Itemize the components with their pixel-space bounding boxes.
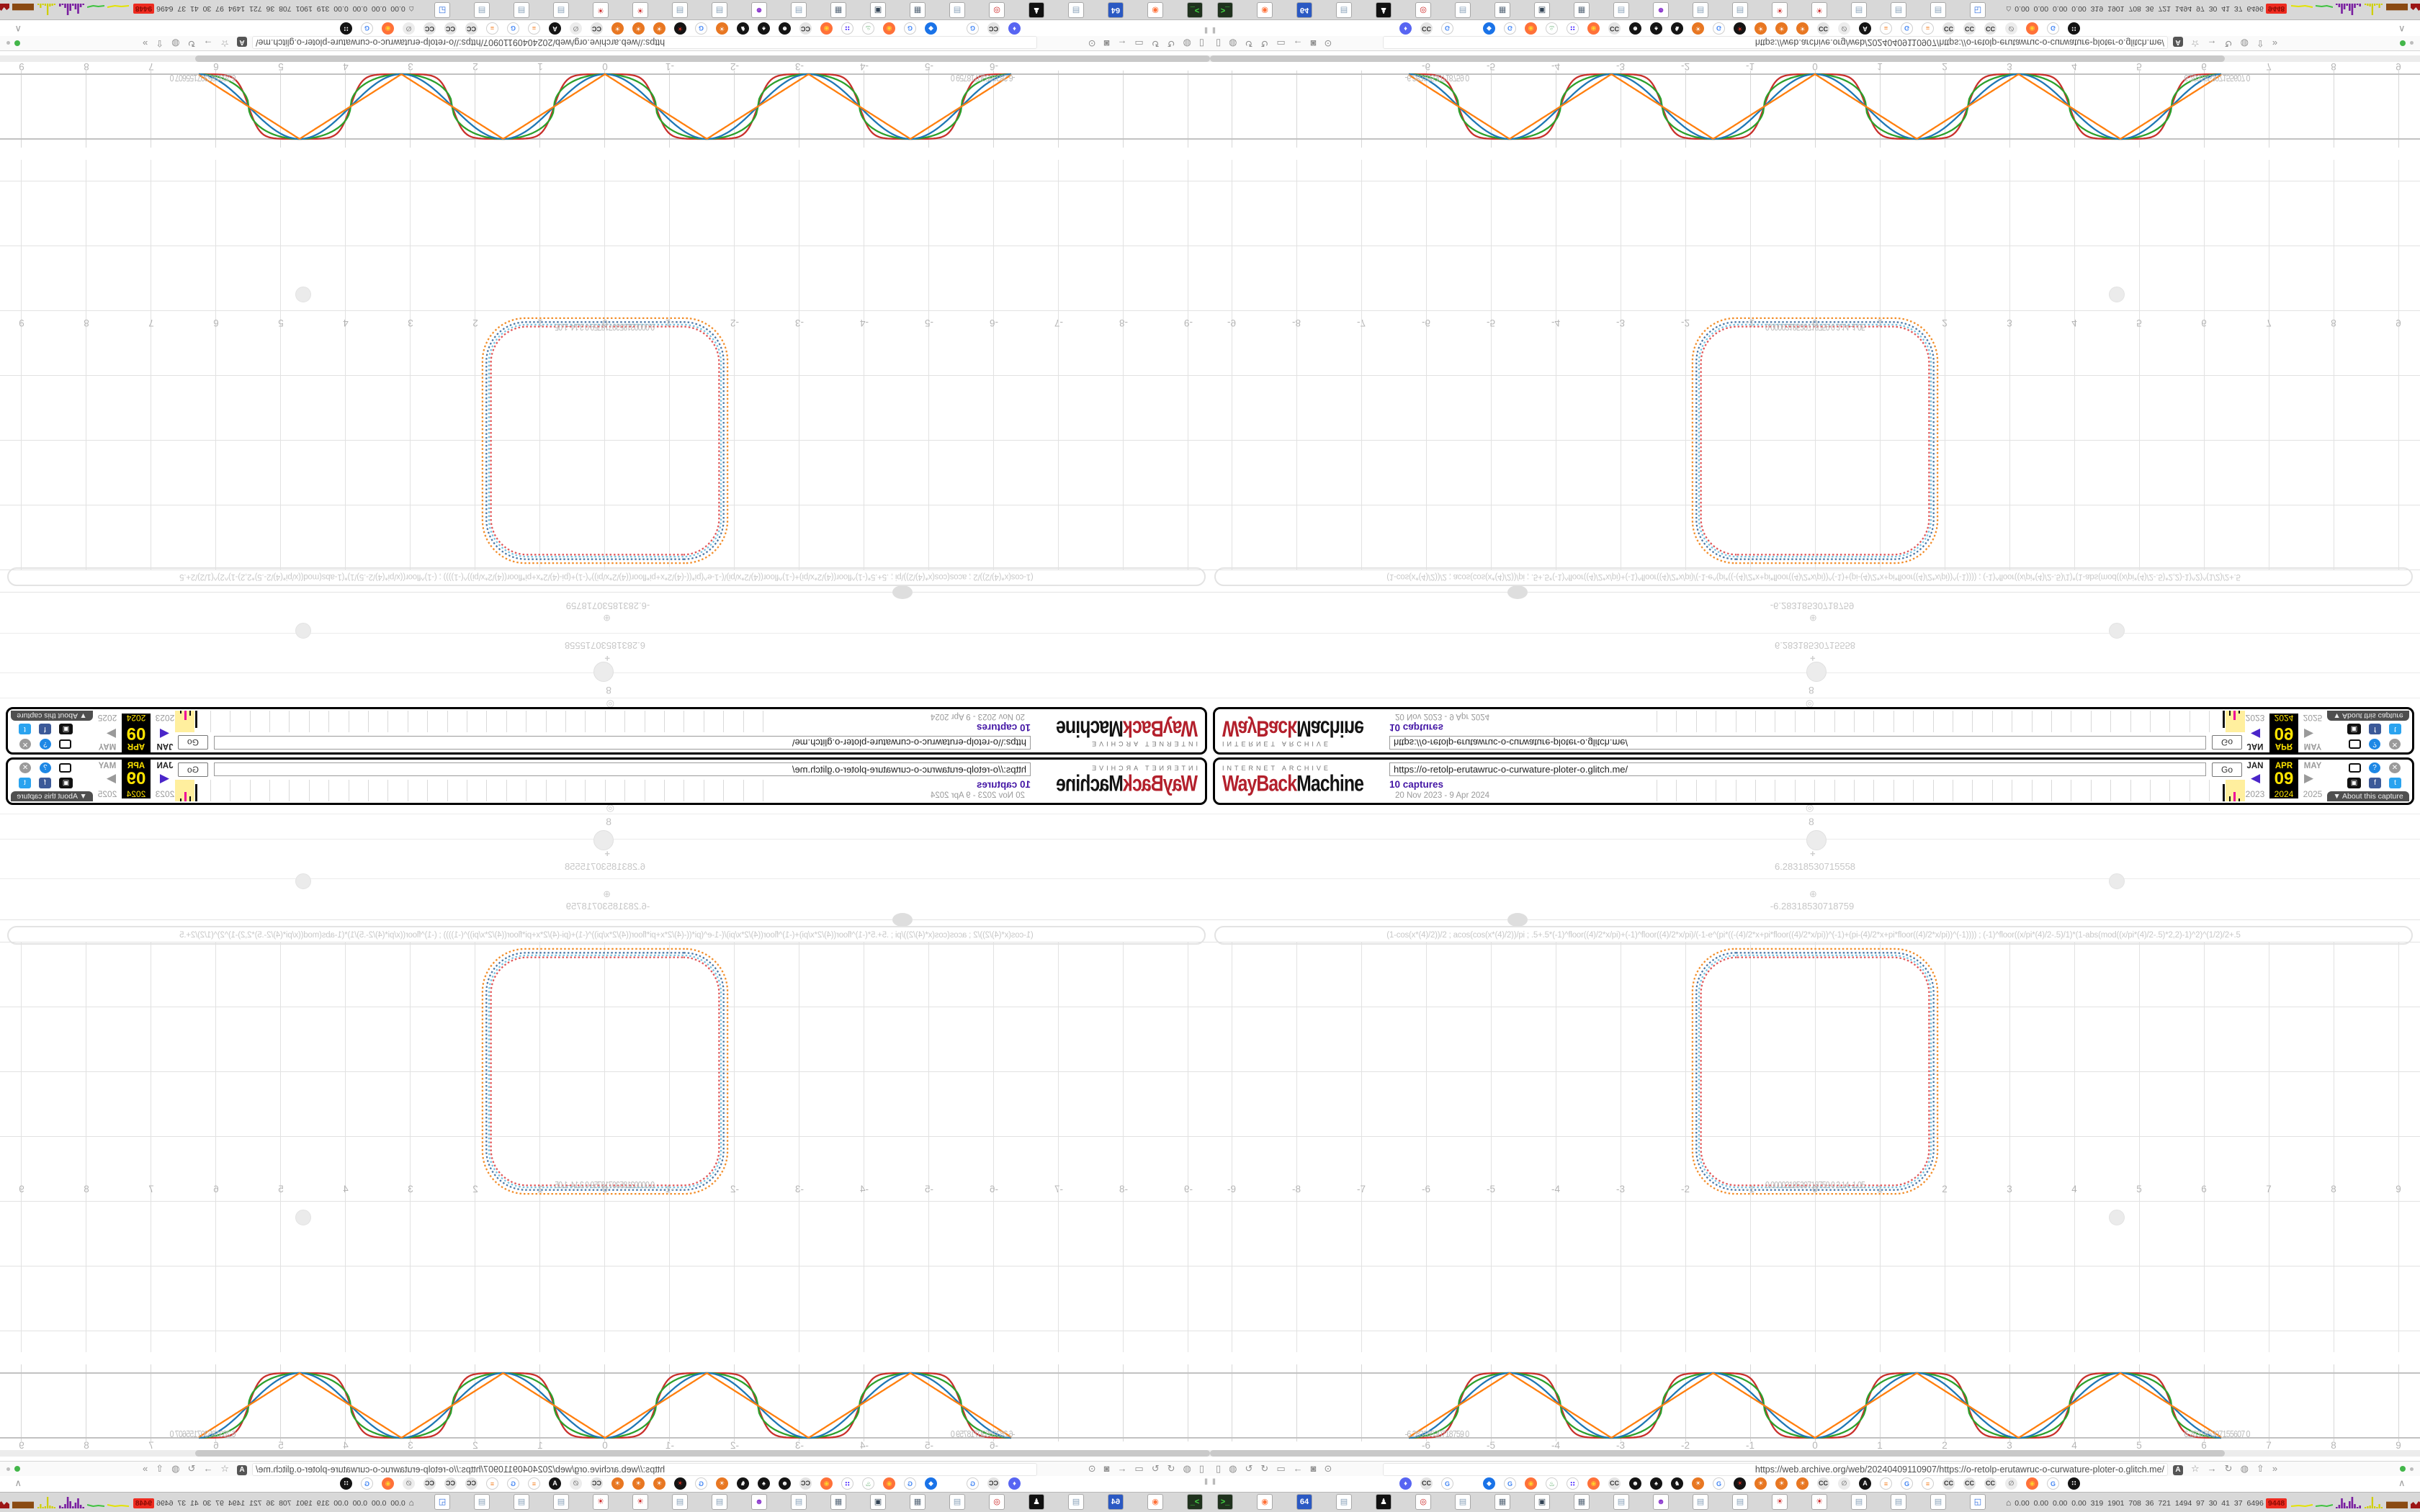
back-icon[interactable]: ← — [1294, 38, 1303, 49]
calculator-app[interactable]: ▦ — [830, 2, 846, 18]
maximize-icon[interactable] — [59, 739, 71, 749]
stackoverflow-favicon[interactable]: ≡ — [486, 22, 498, 35]
prev-capture-arrow[interactable]: ◀ — [160, 726, 169, 741]
gear-app[interactable]: ☀ — [1772, 1494, 1788, 1510]
forward-icon[interactable]: → — [2208, 38, 2217, 49]
bird-favicon[interactable]: ♞ — [737, 22, 749, 35]
next-year-label[interactable]: 2025 — [2297, 713, 2329, 723]
document-app[interactable]: ▤ — [1930, 2, 1946, 18]
gear-dark-favicon[interactable]: ☀ — [1734, 22, 1746, 35]
creative-commons-favicon[interactable]: CC — [1984, 22, 1996, 35]
captures-timeline[interactable] — [1657, 780, 2247, 801]
gear-favicon[interactable]: ☀ — [1775, 1477, 1788, 1490]
lock-icon[interactable]: ⊙ — [1324, 38, 1332, 49]
google-favicon[interactable]: G — [2047, 1477, 2059, 1490]
document-app[interactable]: ▤ — [1693, 2, 1708, 18]
prev-capture-arrow[interactable]: ◀ — [160, 771, 169, 786]
firefox-favicon[interactable]: ◉ — [2026, 22, 2038, 35]
google-favicon[interactable]: G — [695, 1477, 707, 1490]
overflow-menu-icon[interactable]: » — [143, 38, 148, 49]
trash-icon[interactable]: ▯ — [1199, 38, 1204, 49]
glitch-favicon[interactable]: ∷ — [841, 1477, 853, 1490]
document-app[interactable]: ▤ — [1851, 2, 1867, 18]
gear-app[interactable]: ☀ — [593, 2, 609, 18]
gear-favicon[interactable]: ☀ — [1754, 22, 1767, 35]
undo-icon[interactable]: ↺ — [1245, 38, 1253, 49]
wayback-logo[interactable]: INTERNET ARCHIVE WayBackMachine — [1044, 721, 1198, 747]
cat-app[interactable]: ♟ — [1376, 2, 1391, 18]
lock-icon[interactable]: ⊙ — [1088, 1463, 1096, 1474]
prev-year-label[interactable]: 2023 — [2239, 713, 2271, 723]
creative-commons-favicon[interactable]: CC — [1984, 1477, 1996, 1490]
gear-app[interactable]: ☀ — [1772, 2, 1788, 18]
google-favicon[interactable]: G — [507, 1477, 519, 1490]
google-favicon[interactable]: G — [967, 22, 979, 35]
captures-timeline[interactable] — [173, 711, 763, 732]
close-banner-icon[interactable]: ✕ — [2389, 739, 2401, 750]
screenshot-camera-icon[interactable]: ▣ — [59, 724, 73, 734]
range-knob[interactable] — [1806, 662, 1827, 682]
translate-icon[interactable]: A — [2173, 37, 2183, 47]
firefox-app[interactable]: ◉ — [1147, 1494, 1163, 1510]
prev-year-label[interactable]: 2023 — [149, 789, 181, 799]
gear-favicon[interactable]: ☀ — [632, 22, 645, 35]
next-capture-arrow[interactable]: ▶ — [2304, 771, 2313, 786]
document-app[interactable]: ▤ — [1851, 1494, 1867, 1510]
google-favicon[interactable]: G — [361, 22, 373, 35]
redo-icon[interactable]: ↻ — [1260, 38, 1268, 49]
google-favicon[interactable]: G — [904, 22, 916, 35]
globe-icon[interactable]: ◍ — [2241, 38, 2249, 49]
discord-favicon[interactable]: ♦ — [1399, 22, 1412, 35]
smiley-favicon[interactable]: ☻ — [779, 1477, 791, 1490]
calculator-app[interactable]: ▦ — [1574, 2, 1590, 18]
stackoverflow-favicon[interactable]: ≡ — [528, 22, 540, 35]
folder-icon[interactable]: ▭ — [1276, 1463, 1285, 1474]
shield-icon[interactable]: ◙ — [1104, 38, 1110, 49]
folder-icon[interactable]: ▭ — [1276, 38, 1285, 49]
prev-month-label[interactable]: JAN — [151, 762, 179, 770]
glitch-favicon[interactable]: ∷ — [1567, 22, 1579, 35]
address-bar[interactable]: https://web.archive.org/web/202404091109… — [1383, 36, 2168, 49]
grid-favicon[interactable]: ∷ — [2068, 1477, 2080, 1490]
prev-month-label[interactable]: JAN — [2241, 742, 2269, 750]
captures-timeline[interactable] — [1657, 711, 2247, 732]
next-month-label[interactable]: MAY — [2298, 762, 2327, 770]
google-favicon[interactable]: G — [507, 22, 519, 35]
creative-commons-favicon[interactable]: CC — [423, 1477, 436, 1490]
calculator-app[interactable]: ▦ — [1494, 2, 1510, 18]
bird-favicon[interactable]: ♞ — [737, 1477, 749, 1490]
discord-favicon[interactable]: ♦ — [1399, 1477, 1412, 1490]
facebook-icon[interactable]: f — [39, 724, 51, 734]
parameter-slider-thumb[interactable] — [892, 585, 913, 599]
creative-commons-favicon[interactable]: CC — [1608, 1477, 1621, 1490]
document-app[interactable]: ▤ — [1693, 1494, 1708, 1510]
chat-favicon[interactable]: ◆ — [1483, 22, 1495, 35]
about-this-capture[interactable]: ▼ About this capture — [2327, 711, 2409, 721]
lock-icon[interactable]: ⊙ — [1324, 1463, 1332, 1474]
about-this-capture[interactable]: ▼ About this capture — [11, 711, 93, 721]
google-favicon[interactable]: G — [1441, 22, 1453, 35]
next-month-label[interactable]: MAY — [2298, 742, 2327, 750]
cat-app[interactable]: ♟ — [1376, 1494, 1391, 1510]
send-tab-icon[interactable]: ⇧ — [156, 38, 163, 49]
redo-icon[interactable]: ↻ — [1152, 38, 1160, 49]
ymin-value[interactable]: -6.28318530718759 — [550, 600, 665, 611]
horizontal-scrollbar[interactable] — [1210, 55, 2420, 62]
horizontal-scrollbar[interactable] — [1210, 1450, 2420, 1457]
twitter-icon[interactable]: t — [2389, 724, 2401, 734]
folder-icon[interactable]: ▭ — [1134, 1463, 1143, 1474]
trash-icon[interactable]: ▯ — [1216, 1463, 1221, 1474]
bookmark-star-icon[interactable]: ☆ — [220, 38, 229, 49]
gear-favicon[interactable]: ☀ — [716, 1477, 728, 1490]
display-app[interactable]: ▣ — [1534, 1494, 1550, 1510]
stackoverflow-favicon[interactable]: ≡ — [1922, 22, 1934, 35]
document-app[interactable]: ▤ — [712, 2, 727, 18]
range-knob-small[interactable] — [295, 623, 311, 639]
tab-scroll-icon[interactable]: ‖ — [1204, 1477, 1208, 1487]
muted-tab-favicon[interactable]: ∅ — [403, 1477, 415, 1490]
drag-icon[interactable]: ⊕ — [1809, 888, 1817, 900]
stackoverflow-favicon[interactable]: ≡ — [1880, 1477, 1892, 1490]
document-app[interactable]: ▤ — [1455, 1494, 1471, 1510]
creative-commons-favicon[interactable]: CC — [1942, 1477, 1955, 1490]
captures-link[interactable]: 10 captures — [977, 722, 1031, 733]
range-knob-small[interactable] — [295, 873, 311, 889]
google-favicon[interactable]: G — [1504, 22, 1516, 35]
creative-commons-favicon[interactable]: CC — [799, 1477, 812, 1490]
gear-dark-favicon[interactable]: ☀ — [674, 22, 686, 35]
creative-commons-favicon[interactable]: CC — [1963, 1477, 1976, 1490]
globe-icon[interactable]: ◍ — [171, 1463, 179, 1474]
creative-commons-favicon[interactable]: CC — [987, 22, 1000, 35]
document-app[interactable]: ▤ — [1068, 1494, 1084, 1510]
display-app[interactable]: ▣ — [1534, 2, 1550, 18]
document-app[interactable]: ▤ — [553, 2, 569, 18]
muted-tab-favicon[interactable]: ∅ — [1838, 1477, 1850, 1490]
google-favicon[interactable]: G — [361, 1477, 373, 1490]
overflow-menu-icon[interactable]: » — [143, 1463, 148, 1474]
shield-icon[interactable]: ◙ — [1311, 38, 1317, 49]
archive-favicon[interactable]: A — [1859, 1477, 1871, 1490]
bookmark-star-icon[interactable]: ☆ — [2191, 38, 2200, 49]
avatar-app[interactable]: ☻ — [1653, 2, 1669, 18]
gear-app[interactable]: ☀ — [632, 2, 648, 18]
google-favicon[interactable]: G — [2047, 22, 2059, 35]
floppy64-app[interactable]: 64 — [1108, 1494, 1124, 1510]
stackoverflow-favicon[interactable]: ≡ — [486, 1477, 498, 1490]
range-knob[interactable] — [593, 830, 614, 850]
document-app[interactable]: ▤ — [1336, 1494, 1352, 1510]
stackoverflow-favicon[interactable]: ≡ — [528, 1477, 540, 1490]
param-value[interactable]: 8 — [606, 816, 611, 827]
overflow-menu-icon[interactable]: » — [2272, 1463, 2277, 1474]
firefox-favicon[interactable]: ◉ — [382, 22, 394, 35]
help-icon[interactable]: ? — [40, 739, 51, 750]
next-capture-arrow[interactable]: ▶ — [107, 771, 116, 786]
gear-favicon[interactable]: ☀ — [1796, 1477, 1809, 1490]
folder-icon[interactable]: ▭ — [1134, 38, 1143, 49]
ymin-value[interactable]: -6.28318530718759 — [1754, 600, 1870, 611]
redo-icon[interactable]: ↻ — [1260, 1463, 1268, 1474]
scrollbar-thumb[interactable] — [1210, 1450, 2225, 1457]
tab-scroll-icon[interactable]: ‖ — [1212, 25, 1216, 35]
prev-month-label[interactable]: JAN — [2241, 762, 2269, 770]
globe-icon[interactable]: ◍ — [1183, 38, 1191, 49]
creative-commons-favicon[interactable]: CC — [1608, 22, 1621, 35]
gear-app[interactable]: ☀ — [593, 1494, 609, 1510]
help-icon[interactable]: ? — [40, 762, 51, 773]
move-icon[interactable]: + — [1810, 848, 1816, 859]
calculator-app[interactable]: ▦ — [910, 2, 926, 18]
firefox-app[interactable]: ◉ — [1257, 1494, 1273, 1510]
glitch-favicon[interactable]: ∷ — [1567, 1477, 1579, 1490]
stackoverflow-favicon[interactable]: ≡ — [1880, 22, 1892, 35]
back-icon[interactable]: ← — [1117, 38, 1126, 49]
tea-favicon[interactable]: ♨ — [1546, 1477, 1558, 1490]
bird-favicon[interactable]: ♞ — [1671, 22, 1683, 35]
close-banner-icon[interactable]: ✕ — [19, 739, 31, 750]
shield-icon[interactable]: ◙ — [1104, 1463, 1110, 1474]
param-value[interactable]: 8 — [1809, 816, 1814, 827]
range-knob[interactable] — [1806, 830, 1827, 850]
help-icon[interactable]: ? — [2369, 762, 2380, 773]
document-app[interactable]: ▤ — [672, 2, 688, 18]
wayback-url-input[interactable] — [1389, 762, 2206, 776]
creative-commons-favicon[interactable]: CC — [444, 22, 457, 35]
wayback-go-button[interactable]: Go — [2212, 762, 2242, 777]
close-banner-icon[interactable]: ✕ — [2389, 762, 2401, 773]
maximize-icon[interactable] — [2349, 763, 2361, 773]
send-tab-icon[interactable]: ⇧ — [2257, 1463, 2264, 1474]
wayback-url-input[interactable] — [214, 736, 1031, 750]
grid-favicon[interactable]: ∷ — [2068, 22, 2080, 35]
redo-icon[interactable]: ↻ — [1152, 1463, 1160, 1474]
archive-favicon[interactable]: A — [549, 22, 561, 35]
bat-favicon[interactable]: ♠ — [1650, 1477, 1662, 1490]
target-app[interactable]: ◎ — [1415, 2, 1431, 18]
muted-tab-favicon[interactable]: ∅ — [1838, 22, 1850, 35]
gear-favicon[interactable]: ☀ — [716, 22, 728, 35]
firefox-favicon[interactable]: ◉ — [883, 22, 895, 35]
tea-favicon[interactable]: ♨ — [862, 1477, 874, 1490]
overflow-menu-icon[interactable]: » — [2272, 38, 2277, 49]
forward-icon[interactable]: → — [2208, 1463, 2217, 1474]
document-app[interactable]: ▤ — [672, 1494, 688, 1510]
reload-icon[interactable]: ↻ — [2225, 38, 2233, 49]
next-month-label[interactable]: MAY — [93, 742, 122, 750]
firefox-favicon[interactable]: ◉ — [2026, 1477, 2038, 1490]
reload-icon[interactable]: ↻ — [187, 38, 195, 49]
google-favicon[interactable]: G — [1713, 1477, 1725, 1490]
firefox-app[interactable]: ◉ — [1257, 2, 1273, 18]
globe-icon[interactable]: ◍ — [2241, 1463, 2249, 1474]
creative-commons-favicon[interactable]: CC — [465, 22, 478, 35]
terminal-app[interactable]: >_ — [1187, 1494, 1203, 1510]
tea-favicon[interactable]: ♨ — [862, 22, 874, 35]
document-app[interactable]: ▤ — [1613, 1494, 1629, 1510]
document-app[interactable]: ▤ — [1930, 1494, 1946, 1510]
range-knob-small[interactable] — [2109, 873, 2125, 889]
document-app[interactable]: ▤ — [1732, 2, 1748, 18]
document-app[interactable]: ▤ — [1732, 1494, 1748, 1510]
gear-favicon[interactable]: ☀ — [653, 22, 665, 35]
document-app[interactable]: ▤ — [553, 1494, 569, 1510]
prev-year-label[interactable]: 2023 — [2239, 789, 2271, 799]
google-favicon[interactable]: G — [1713, 22, 1725, 35]
target-app[interactable]: ◎ — [989, 2, 1005, 18]
captures-timeline[interactable] — [173, 780, 763, 801]
creative-commons-favicon[interactable]: CC — [1963, 22, 1976, 35]
chat-favicon[interactable]: ◆ — [1483, 1477, 1495, 1490]
next-month-label[interactable]: MAY — [93, 762, 122, 770]
calculator-app[interactable]: ▦ — [910, 1494, 926, 1510]
cat-app[interactable]: ♟ — [1028, 1494, 1044, 1510]
globe-icon[interactable]: ◍ — [1229, 38, 1237, 49]
creative-commons-favicon[interactable]: CC — [444, 1477, 457, 1490]
scrollbar-thumb[interactable] — [1210, 55, 2225, 62]
range-knob[interactable] — [593, 662, 614, 682]
undo-icon[interactable]: ↺ — [1168, 1463, 1175, 1474]
next-year-label[interactable]: 2025 — [91, 789, 123, 799]
horizontal-scrollbar[interactable] — [0, 1450, 1210, 1457]
ymin-value[interactable]: -6.28318530718759 — [1754, 901, 1870, 912]
gear-favicon[interactable]: ☀ — [1796, 22, 1809, 35]
avatar-app[interactable]: ☻ — [1653, 1494, 1669, 1510]
gear-app[interactable]: ☀ — [632, 1494, 648, 1510]
window-app[interactable]: ◱ — [1970, 2, 1986, 18]
muted-tab-favicon[interactable]: ∅ — [2005, 22, 2017, 35]
display-app[interactable]: ▣ — [870, 2, 886, 18]
wayback-go-button[interactable]: Go — [178, 762, 208, 777]
google-favicon[interactable]: G — [904, 1477, 916, 1490]
document-app[interactable]: ▤ — [1068, 2, 1084, 18]
parameter-slider-track[interactable] — [1210, 919, 2420, 920]
bookmark-star-icon[interactable]: ☆ — [2191, 1463, 2200, 1474]
back-icon[interactable]: ← — [1294, 1463, 1303, 1474]
bat-favicon[interactable]: ♠ — [1650, 22, 1662, 35]
scrollbar-thumb[interactable] — [195, 55, 1210, 62]
display-app[interactable]: ▣ — [870, 1494, 886, 1510]
ymax-value[interactable]: 6.28318530715558 — [547, 640, 663, 651]
globe-icon[interactable]: ◍ — [171, 38, 179, 49]
wayback-go-button[interactable]: Go — [178, 735, 208, 750]
translate-icon[interactable]: A — [237, 37, 247, 47]
address-bar[interactable]: https://web.archive.org/web/202404091109… — [1383, 1463, 2168, 1476]
google-favicon[interactable]: G — [1441, 1477, 1453, 1490]
window-app[interactable]: ◱ — [434, 1494, 450, 1510]
prev-capture-arrow[interactable]: ◀ — [2251, 771, 2260, 786]
maximize-icon[interactable] — [59, 763, 71, 773]
param-value[interactable]: 8 — [1809, 685, 1814, 696]
firefox-app[interactable]: ◉ — [1147, 2, 1163, 18]
wayback-logo[interactable]: INTERNET ARCHIVE WayBackMachine — [1222, 721, 1376, 747]
screenshot-camera-icon[interactable]: ▣ — [2347, 724, 2361, 734]
gear-favicon[interactable]: ☀ — [1692, 1477, 1704, 1490]
avatar-app[interactable]: ☻ — [751, 1494, 767, 1510]
firefox-favicon[interactable]: ◉ — [1525, 22, 1537, 35]
creative-commons-favicon[interactable]: CC — [1817, 1477, 1829, 1490]
trash-icon[interactable]: ▯ — [1216, 38, 1221, 49]
google-favicon[interactable]: G — [1901, 22, 1913, 35]
gear-favicon[interactable]: ☀ — [653, 1477, 665, 1490]
grid-favicon[interactable]: ∷ — [340, 22, 352, 35]
muted-tab-favicon[interactable]: ∅ — [2005, 1477, 2017, 1490]
back-icon[interactable]: ← — [1117, 1463, 1126, 1474]
twitter-icon[interactable]: t — [19, 724, 31, 734]
target-app[interactable]: ◎ — [989, 1494, 1005, 1510]
document-app[interactable]: ▤ — [1455, 2, 1471, 18]
tab-scroll-icon[interactable]: ‖ — [1204, 25, 1208, 35]
gear-favicon[interactable]: ☀ — [1754, 1477, 1767, 1490]
captures-link[interactable]: 10 captures — [1389, 722, 1443, 733]
tab-overflow-chevron[interactable]: ∧ — [2398, 1477, 2406, 1489]
about-this-capture[interactable]: ▼ About this capture — [11, 791, 93, 801]
bat-favicon[interactable]: ♠ — [758, 22, 770, 35]
translate-icon[interactable]: A — [237, 1465, 247, 1475]
smiley-favicon[interactable]: ☻ — [1629, 1477, 1641, 1490]
document-app[interactable]: ▤ — [791, 1494, 807, 1510]
param-value[interactable]: 8 — [606, 685, 611, 696]
document-app[interactable]: ▤ — [474, 1494, 490, 1510]
firefox-favicon[interactable]: ◉ — [382, 1477, 394, 1490]
translate-icon[interactable]: A — [2173, 1465, 2183, 1475]
gear-app[interactable]: ☀ — [1811, 2, 1827, 18]
ymin-value[interactable]: -6.28318530718759 — [550, 901, 665, 912]
firefox-favicon[interactable]: ◉ — [820, 22, 833, 35]
archive-favicon[interactable]: A — [549, 1477, 561, 1490]
creative-commons-favicon[interactable]: CC — [1817, 22, 1829, 35]
undo-icon[interactable]: ↺ — [1168, 38, 1175, 49]
captures-link[interactable]: 10 captures — [977, 779, 1031, 790]
wayback-logo[interactable]: INTERNET ARCHIVE WayBackMachine — [1044, 765, 1198, 791]
firefox-favicon[interactable]: ◉ — [883, 1477, 895, 1490]
prev-month-label[interactable]: JAN — [151, 742, 179, 750]
document-app[interactable]: ▤ — [514, 2, 529, 18]
stackoverflow-favicon[interactable]: ≡ — [1922, 1477, 1934, 1490]
bat-favicon[interactable]: ♠ — [758, 1477, 770, 1490]
address-bar[interactable]: https://web.archive.org/web/202404091109… — [252, 36, 1037, 49]
google-favicon[interactable]: G — [967, 1477, 979, 1490]
creative-commons-favicon[interactable]: CC — [591, 1477, 603, 1490]
maximize-icon[interactable] — [2349, 739, 2361, 749]
document-app[interactable]: ▤ — [791, 2, 807, 18]
drag-icon[interactable]: ⊕ — [603, 612, 611, 624]
parameter-slider-track[interactable] — [1210, 592, 2420, 593]
shield-icon[interactable]: ◙ — [1311, 1463, 1317, 1474]
gear-favicon[interactable]: ☀ — [1692, 22, 1704, 35]
facebook-icon[interactable]: f — [2369, 724, 2381, 734]
wayback-url-input[interactable] — [1389, 736, 2206, 750]
document-app[interactable]: ▤ — [474, 2, 490, 18]
smiley-favicon[interactable]: ☻ — [779, 22, 791, 35]
wayback-go-button[interactable]: Go — [2212, 735, 2242, 750]
undo-icon[interactable]: ↺ — [1245, 1463, 1253, 1474]
ymax-value[interactable]: 6.28318530715558 — [1757, 861, 1873, 872]
lock-icon[interactable]: ⊙ — [1088, 38, 1096, 49]
tab-scroll-icon[interactable]: ‖ — [1212, 1477, 1216, 1487]
wayback-url-input[interactable] — [214, 762, 1031, 776]
calculator-app[interactable]: ▦ — [1494, 1494, 1510, 1510]
creative-commons-favicon[interactable]: CC — [591, 22, 603, 35]
globe-icon[interactable]: ◍ — [1183, 1463, 1191, 1474]
send-tab-icon[interactable]: ⇧ — [2257, 38, 2264, 49]
floppy64-app[interactable]: 64 — [1296, 2, 1312, 18]
captures-link[interactable]: 10 captures — [1389, 779, 1443, 790]
reload-icon[interactable]: ↻ — [187, 1463, 195, 1474]
